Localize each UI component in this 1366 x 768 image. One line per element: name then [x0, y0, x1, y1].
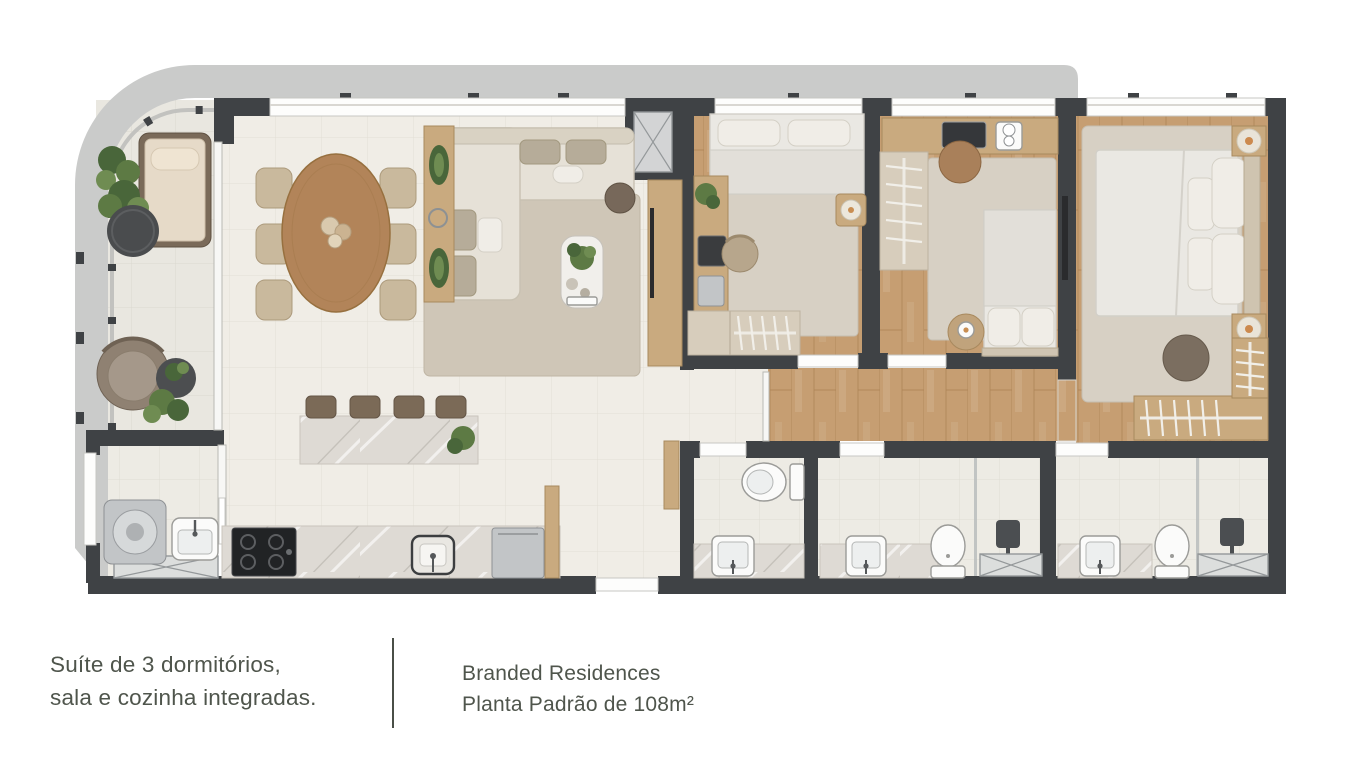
hallway-wood-floor — [768, 368, 1058, 441]
plan-description-line2: sala e cozinha integradas. — [50, 681, 317, 714]
master-bath-door — [1056, 443, 1108, 456]
headboard — [1244, 152, 1260, 318]
wardrobe — [688, 311, 800, 355]
tv-master — [1062, 196, 1068, 280]
washing-machine — [104, 500, 166, 564]
side-table — [107, 205, 159, 257]
laundry-window — [84, 453, 96, 545]
floor-plan-page: Suíte de 3 dormitórios, sala e cozinha i… — [0, 0, 1366, 768]
plant-console — [424, 126, 454, 302]
caption-divider — [392, 638, 394, 728]
nightstand — [836, 194, 866, 226]
bedroom2-window — [892, 98, 1055, 116]
pouf — [605, 183, 635, 213]
sink — [1080, 536, 1120, 576]
living-window — [270, 98, 625, 116]
bedroom1-door — [798, 355, 858, 367]
plan-description: Suíte de 3 dormitórios, sala e cozinha i… — [50, 648, 317, 714]
sink — [846, 536, 886, 576]
balcony-glass-door — [214, 142, 222, 430]
plan-title: Branded Residences Planta Padrão de 108m… — [462, 658, 694, 720]
floor-plan — [0, 0, 1366, 620]
bath1-door — [700, 443, 746, 456]
plan-title-line2: Planta Padrão de 108m² — [462, 689, 694, 720]
bath1-door-leaf — [664, 441, 679, 509]
bed — [710, 114, 864, 194]
entry-door — [596, 578, 658, 591]
bath2-door — [840, 443, 884, 456]
master-suite — [1062, 126, 1268, 440]
plan-title-line1: Branded Residences — [462, 658, 694, 689]
laundry-sink — [172, 518, 218, 560]
dining — [256, 154, 416, 320]
sofa-tray — [553, 166, 583, 183]
pouf — [1163, 335, 1209, 381]
bed — [982, 210, 1058, 356]
coffee-table — [561, 236, 603, 308]
daybed-pillow — [151, 148, 199, 170]
toilet — [742, 463, 804, 501]
toilet — [1155, 525, 1189, 578]
cooktop — [232, 528, 296, 576]
kitchen-sink — [412, 536, 454, 574]
side-unit — [698, 276, 724, 306]
refrigerator — [492, 528, 544, 578]
air-shaft — [634, 112, 672, 172]
desk-chair — [939, 141, 981, 183]
hall-west-floor — [694, 368, 768, 443]
master-entry-opening — [1058, 380, 1076, 441]
tall-cabinet — [545, 486, 559, 578]
tv-living — [650, 208, 654, 298]
closet — [880, 152, 928, 270]
caption-row: Suíte de 3 dormitórios, sala e cozinha i… — [0, 620, 1366, 768]
plan-description-line1: Suíte de 3 dormitórios, — [50, 648, 317, 681]
hall-passage-frame — [763, 372, 769, 441]
master-window — [1087, 98, 1265, 116]
nightstand — [1232, 126, 1266, 156]
bedroom1 — [688, 114, 866, 355]
sink — [712, 536, 754, 576]
toilet — [931, 525, 965, 578]
bedroom2-door — [888, 355, 946, 367]
bedside-table — [948, 314, 984, 350]
bed — [1096, 150, 1260, 318]
shower-glass — [974, 458, 977, 576]
